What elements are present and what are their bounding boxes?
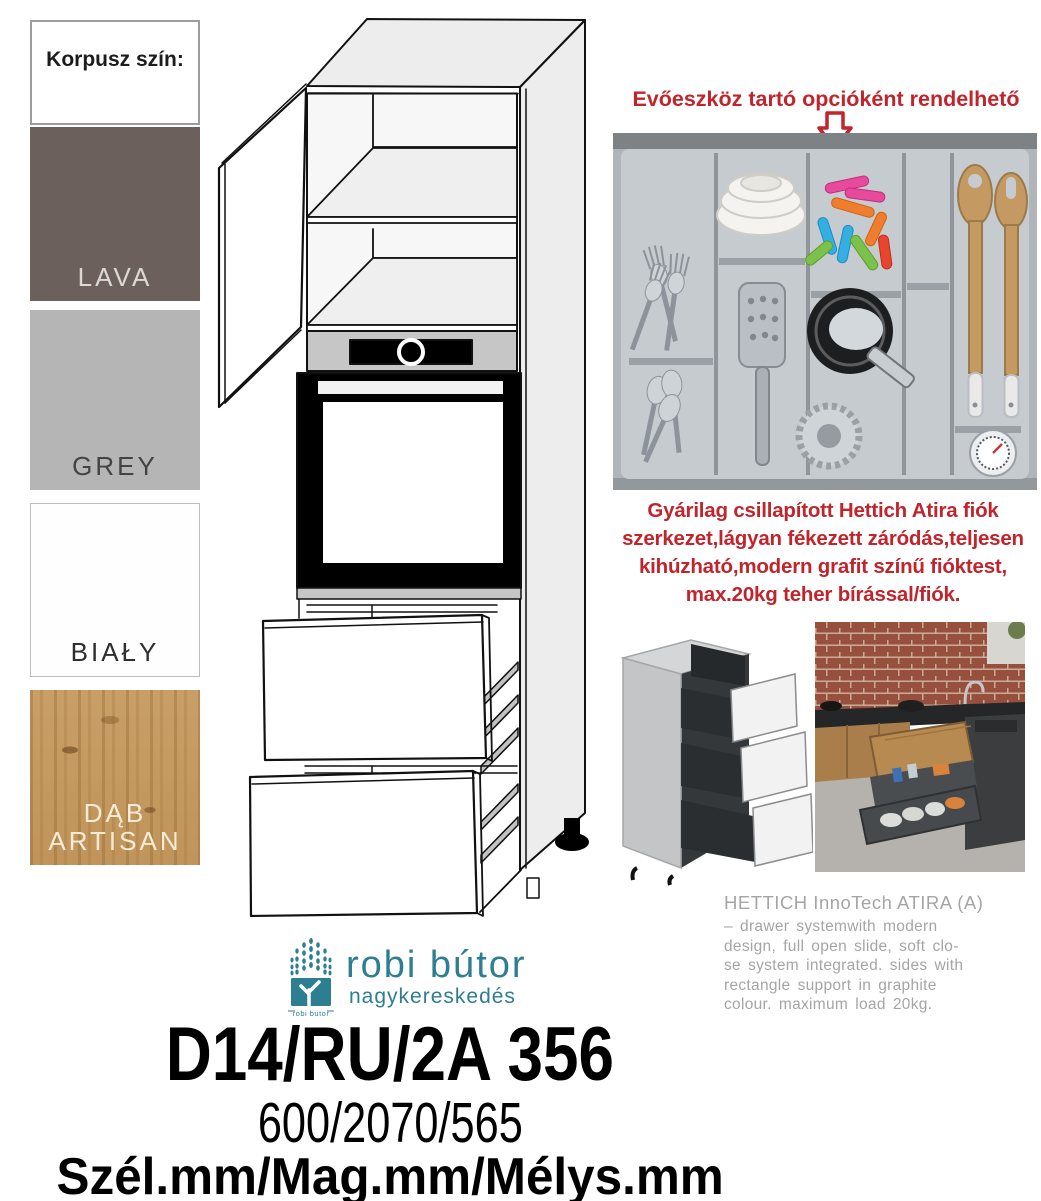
swatch-dab-artisan-label: DĄB ARTISAN xyxy=(30,799,200,865)
kitchen-timer xyxy=(970,430,1016,476)
oven-knob-icon xyxy=(399,340,423,364)
cabinet-line-drawing xyxy=(210,5,610,920)
product-code: D14/RU/2A 356 xyxy=(0,1016,780,1094)
oven-control-panel xyxy=(307,331,517,371)
kitchen-drawers-photo xyxy=(815,622,1025,872)
carcass-color-title: Korpusz szín: xyxy=(46,48,184,123)
drawer-feature-note: Gyárilag csillapított Hettich Atira fiók… xyxy=(605,497,1041,609)
carcass-color-header: Korpusz szín: xyxy=(30,20,200,125)
brand-name: robi bútor xyxy=(346,944,527,987)
cabinet-shelf-section xyxy=(307,94,517,332)
swatch-lava: LAVA xyxy=(30,127,200,301)
swatch-bialy-label: BIAŁY xyxy=(71,638,160,676)
upper-drawer-front xyxy=(263,615,492,761)
cabinet-side-panel xyxy=(520,20,585,870)
tree-logo-icon: robi butor xyxy=(288,936,334,1018)
swatch-bialy: BIAŁY xyxy=(30,503,200,677)
lower-drawer-front xyxy=(250,771,483,916)
cutlery-tray-photo xyxy=(613,133,1037,490)
hettich-info: HETTICH InnoTech ATIRA (A) – drawer syst… xyxy=(724,892,1018,1015)
swatch-grey-label: GREY xyxy=(72,452,158,490)
oven-front xyxy=(297,373,521,599)
drawer-cabinet-render xyxy=(613,628,813,886)
product-dimensions: 600/2070/565 xyxy=(0,1094,780,1152)
coffee-filters xyxy=(717,174,805,235)
tart-tin xyxy=(799,406,859,466)
drawer-rails-lower xyxy=(480,784,521,912)
product-sheet: Korpusz szín: LAVA GREY BIAŁY DĄB ARTISA… xyxy=(0,0,1041,1201)
oven-window xyxy=(323,402,503,563)
cutlery-option-heading: Evőeszköz tartó opcióként rendelhető xyxy=(611,87,1041,112)
swatch-lava-label: LAVA xyxy=(78,263,153,301)
product-dimensions-legend: Szél.mm/Mag.mm/Mélys.mm xyxy=(0,1150,780,1201)
hettich-title: HETTICH InnoTech ATIRA (A) xyxy=(724,892,1018,914)
brand-subtitle: nagykereskedés xyxy=(349,985,516,1009)
oven-handle xyxy=(318,381,503,394)
open-door xyxy=(219,84,306,407)
swatch-dab-artisan: DĄB ARTISAN xyxy=(30,690,200,865)
hettich-body: – drawer systemwith modern design, full … xyxy=(724,917,1018,1015)
swatch-grey: GREY xyxy=(30,310,200,490)
